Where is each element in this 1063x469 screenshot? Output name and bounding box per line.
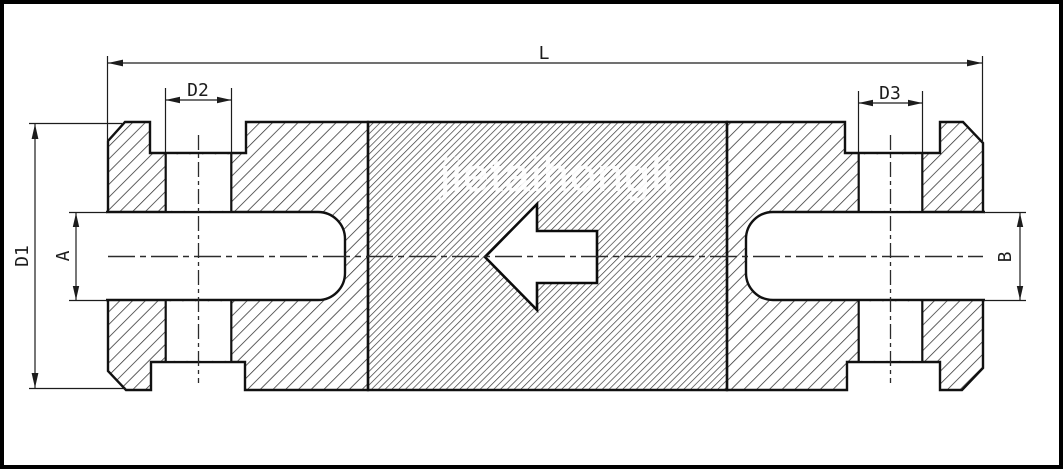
dimension-label-flange-od: D1 — [12, 245, 33, 267]
watermark-text: jietaihongli — [438, 148, 674, 201]
dimension-label-left-bore: A — [53, 250, 74, 261]
technical-drawing-canvas: jietaihongli L D2 D3 D1 — [0, 0, 1063, 469]
technical-drawing-page: jietaihongli L D2 D3 D1 — [0, 0, 1063, 469]
dimension-label-right-bolt-hole: D3 — [879, 83, 901, 104]
dimension-label-right-bore: B — [995, 252, 1016, 263]
dimension-label-length: L — [539, 43, 550, 64]
dimension-A — [69, 213, 107, 301]
dimension-label-left-bolt-hole: D2 — [187, 80, 209, 101]
